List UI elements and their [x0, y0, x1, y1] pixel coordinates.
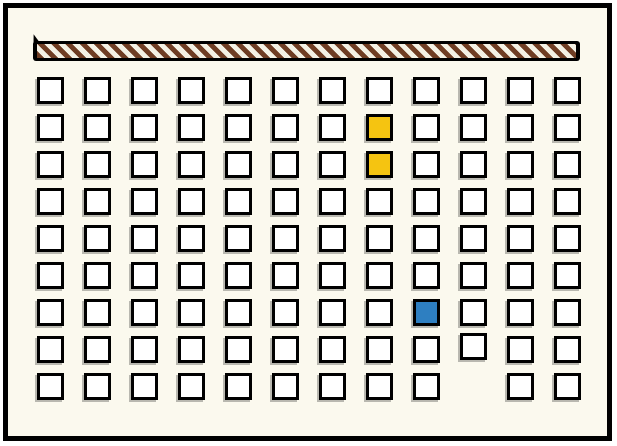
grid-square[interactable] — [37, 336, 64, 363]
grid-square[interactable] — [225, 299, 252, 326]
grid-square[interactable] — [131, 225, 158, 252]
grid-square-yellow[interactable] — [366, 151, 393, 178]
grid-square[interactable] — [37, 77, 64, 104]
grid-square[interactable] — [319, 114, 346, 141]
grid-square[interactable] — [37, 262, 64, 289]
grid-square[interactable] — [366, 262, 393, 289]
grid-square[interactable] — [37, 373, 64, 400]
grid-square[interactable] — [131, 262, 158, 289]
grid-square[interactable] — [272, 299, 299, 326]
grid-square[interactable] — [225, 225, 252, 252]
grid-square[interactable] — [131, 373, 158, 400]
grid-square[interactable] — [272, 151, 299, 178]
grid-square[interactable] — [84, 373, 111, 400]
grid-square[interactable] — [366, 225, 393, 252]
grid-square[interactable] — [319, 262, 346, 289]
grid-square[interactable] — [413, 114, 440, 141]
grid-square[interactable] — [178, 188, 205, 215]
grid-square[interactable] — [131, 114, 158, 141]
grid-square[interactable] — [37, 299, 64, 326]
grid-square[interactable] — [178, 336, 205, 363]
grid-square[interactable] — [319, 373, 346, 400]
grid-square[interactable] — [84, 262, 111, 289]
grid-square[interactable] — [319, 151, 346, 178]
grid-square[interactable] — [84, 336, 111, 363]
grid-square[interactable] — [366, 77, 393, 104]
grid-square[interactable] — [272, 114, 299, 141]
grid-square[interactable] — [554, 77, 581, 104]
tile-grid — [37, 77, 581, 400]
grid-square[interactable] — [225, 77, 252, 104]
grid-square[interactable] — [272, 77, 299, 104]
grid-square[interactable] — [319, 77, 346, 104]
grid-square[interactable] — [507, 262, 534, 289]
grid-square[interactable] — [178, 262, 205, 289]
grid-square[interactable] — [225, 262, 252, 289]
grid-square[interactable] — [554, 299, 581, 326]
grid-square[interactable] — [413, 151, 440, 178]
grid-square[interactable] — [366, 373, 393, 400]
grid-square[interactable] — [178, 77, 205, 104]
bar-stripes — [37, 44, 576, 58]
grid-square[interactable] — [366, 188, 393, 215]
grid-square[interactable] — [460, 188, 487, 215]
grid-square[interactable] — [319, 188, 346, 215]
grid-square[interactable] — [413, 225, 440, 252]
grid-square[interactable] — [554, 225, 581, 252]
grid-square[interactable] — [366, 299, 393, 326]
grid-square[interactable] — [413, 336, 440, 363]
grid-square[interactable] — [178, 151, 205, 178]
grid-square[interactable] — [84, 299, 111, 326]
striped-bar — [33, 41, 580, 61]
grid-square[interactable] — [460, 114, 487, 141]
grid-square[interactable] — [37, 114, 64, 141]
board — [0, 0, 617, 446]
grid-square-yellow[interactable] — [366, 114, 393, 141]
grid-square[interactable] — [554, 188, 581, 215]
grid-square[interactable] — [178, 299, 205, 326]
grid-square[interactable] — [225, 151, 252, 178]
grid-square[interactable] — [554, 336, 581, 363]
grid-square[interactable] — [507, 77, 534, 104]
grid-square[interactable] — [84, 114, 111, 141]
grid-square[interactable] — [319, 299, 346, 326]
grid-square[interactable] — [507, 151, 534, 178]
grid-square[interactable] — [37, 188, 64, 215]
grid-square[interactable] — [178, 373, 205, 400]
grid-square[interactable] — [225, 114, 252, 141]
grid-square[interactable] — [84, 188, 111, 215]
grid-square[interactable] — [460, 333, 487, 360]
grid-square[interactable] — [272, 336, 299, 363]
grid-square[interactable] — [460, 77, 487, 104]
grid-square[interactable] — [554, 114, 581, 141]
grid-square[interactable] — [84, 77, 111, 104]
grid-square[interactable] — [507, 225, 534, 252]
empty-cell — [460, 373, 487, 400]
grid-square[interactable] — [507, 188, 534, 215]
grid-square[interactable] — [272, 225, 299, 252]
grid-square[interactable] — [413, 188, 440, 215]
grid-square[interactable] — [84, 225, 111, 252]
grid-square[interactable] — [460, 151, 487, 178]
grid-square[interactable] — [178, 114, 205, 141]
grid-square[interactable] — [554, 262, 581, 289]
grid-square[interactable] — [131, 336, 158, 363]
grid-square[interactable] — [319, 225, 346, 252]
grid-square[interactable] — [554, 373, 581, 400]
grid-square[interactable] — [413, 373, 440, 400]
grid-square[interactable] — [84, 151, 111, 178]
grid-square[interactable] — [413, 77, 440, 104]
grid-square[interactable] — [225, 336, 252, 363]
grid-square[interactable] — [131, 299, 158, 326]
grid-square[interactable] — [460, 262, 487, 289]
grid-square[interactable] — [225, 373, 252, 400]
grid-square[interactable] — [507, 336, 534, 363]
grid-square[interactable] — [272, 373, 299, 400]
grid-square[interactable] — [460, 225, 487, 252]
grid-square[interactable] — [507, 114, 534, 141]
grid-square[interactable] — [366, 336, 393, 363]
grid-square[interactable] — [460, 299, 487, 326]
grid-square-blue[interactable] — [413, 299, 440, 326]
grid-square[interactable] — [272, 188, 299, 215]
grid-square[interactable] — [131, 188, 158, 215]
grid-square[interactable] — [272, 262, 299, 289]
grid-square[interactable] — [319, 336, 346, 363]
grid-square[interactable] — [507, 299, 534, 326]
grid-square[interactable] — [131, 77, 158, 104]
grid-square[interactable] — [413, 262, 440, 289]
grid-square[interactable] — [507, 373, 534, 400]
grid-square[interactable] — [178, 225, 205, 252]
grid-square[interactable] — [131, 151, 158, 178]
grid-square[interactable] — [554, 151, 581, 178]
grid-square[interactable] — [37, 151, 64, 178]
grid-square[interactable] — [225, 188, 252, 215]
grid-square[interactable] — [37, 225, 64, 252]
